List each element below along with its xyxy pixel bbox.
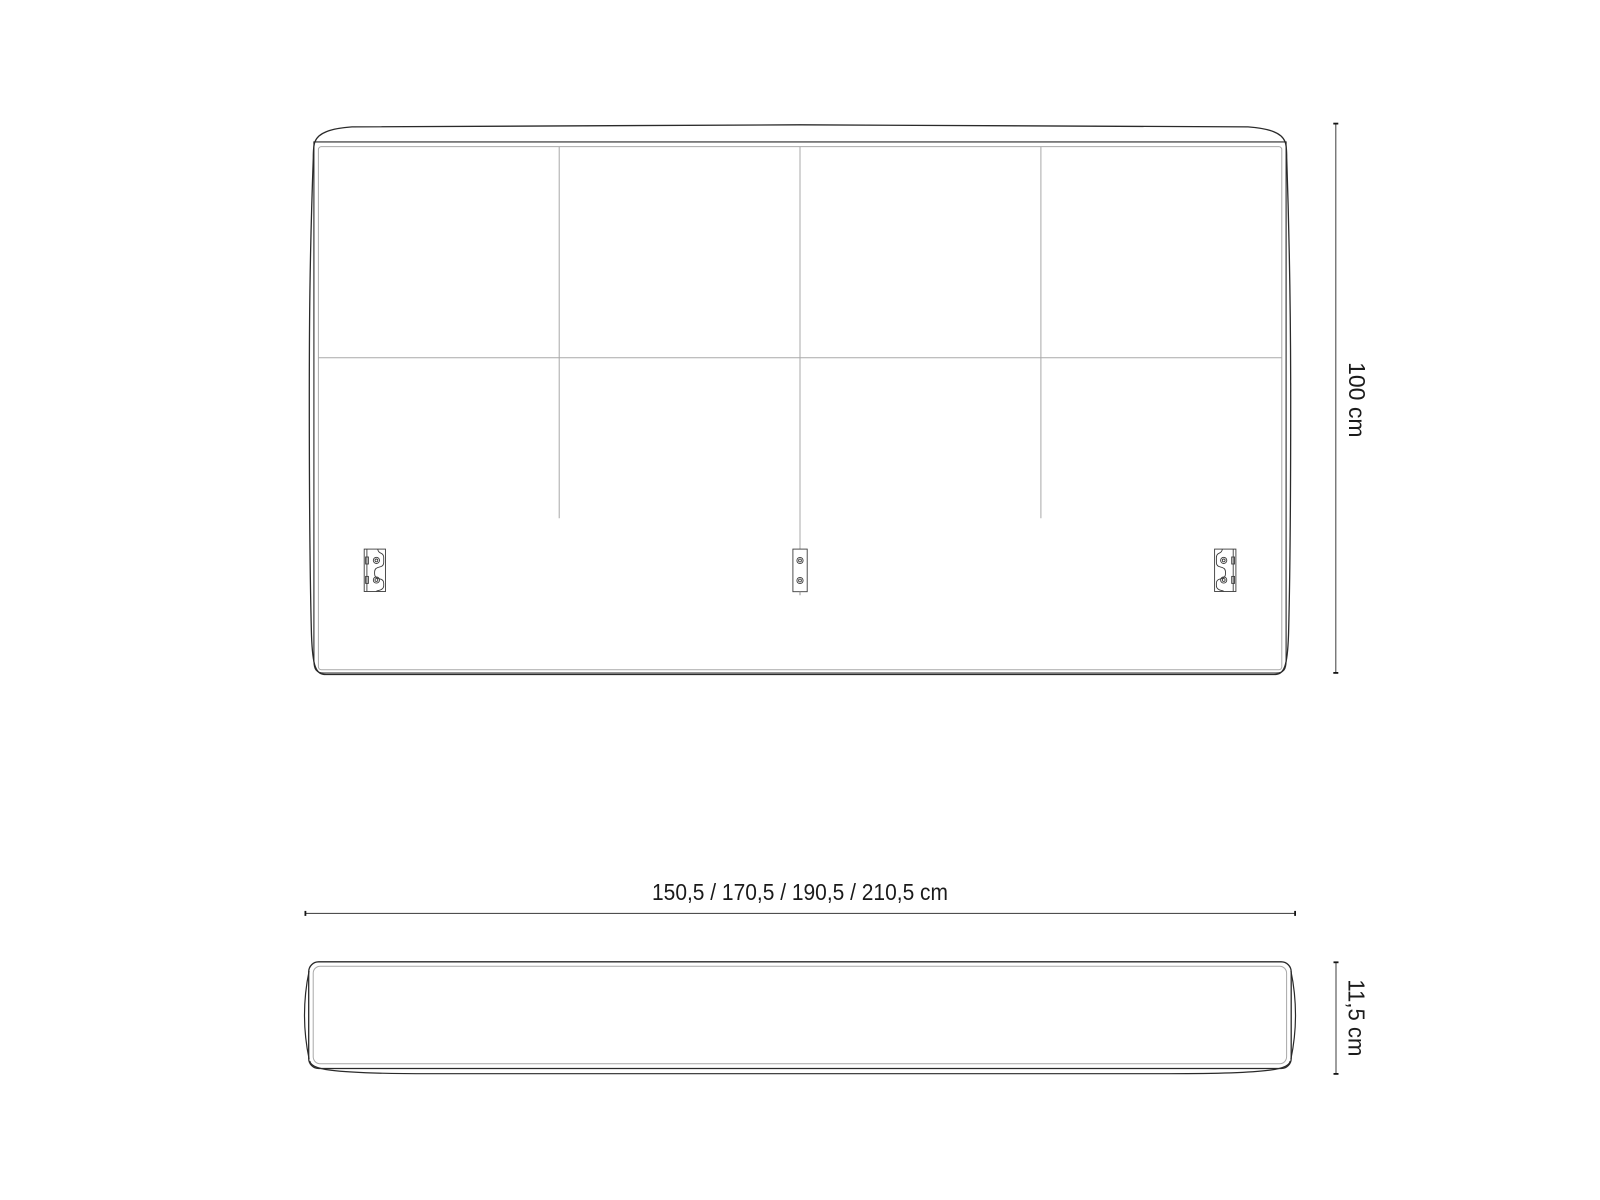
svg-text:11,5 cm: 11,5 cm bbox=[1344, 979, 1370, 1056]
svg-text:100 cm: 100 cm bbox=[1344, 362, 1370, 437]
svg-text:150,5 / 170,5 / 190,5 / 210,5: 150,5 / 170,5 / 190,5 / 210,5 cm bbox=[652, 879, 948, 905]
